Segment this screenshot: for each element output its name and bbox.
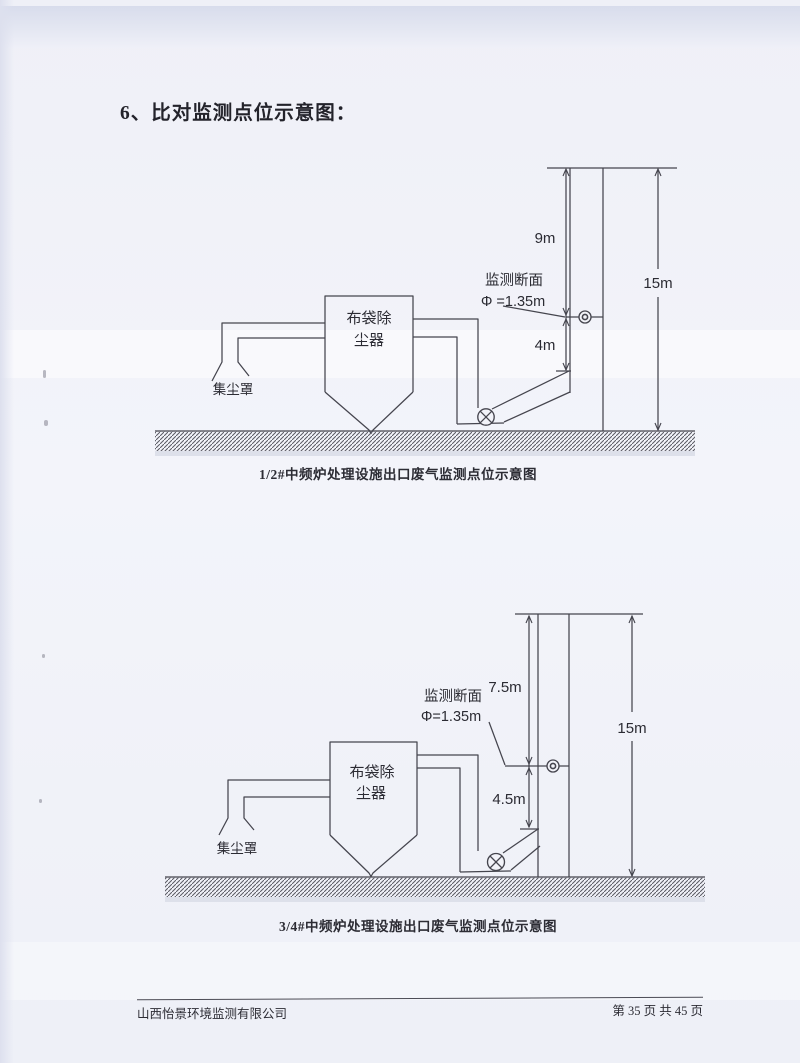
page-heading: 6、比对监测点位示意图： [120, 96, 356, 125]
dim-label-upper: 9m [535, 230, 556, 247]
bag-filter-label-line2: 尘器 [356, 785, 386, 802]
diameter-label: Φ=1.35m [421, 709, 481, 725]
sampling-port-icon [579, 311, 591, 323]
duct-system [417, 755, 540, 872]
collection-hood-outline [212, 323, 325, 381]
diagram-2-caption: 3/4#中频炉处理设施出口废气监测点位示意图 [160, 915, 676, 935]
footer-page-number: 第 35 页 共 45 页 [500, 1000, 703, 1019]
dimension-lines [489, 616, 635, 876]
bag-filter-label-line2: 尘器 [354, 332, 384, 349]
scan-speck [43, 370, 46, 378]
sampling-port-icon [547, 760, 559, 772]
hood-label: 集尘罩 [213, 382, 254, 397]
dim-label-upper: 7.5m [488, 679, 521, 696]
dimension-arrowheads [526, 616, 635, 876]
duct-system [413, 319, 570, 424]
collection-hood-outline [219, 780, 330, 835]
fan-icon [478, 409, 494, 425]
diagram-1: 9m 4m 15m 监测断面 Φ =1.35m 布袋除 尘器 集尘罩 [140, 150, 710, 462]
bag-filter-label-line1: 布袋除 [346, 310, 391, 327]
dimension-arrowheads [563, 169, 661, 430]
hood-label: 集尘罩 [217, 841, 258, 856]
bag-filter-label-line1: 布袋除 [349, 764, 394, 781]
fan-icon [488, 854, 505, 871]
diagram-2: 7.5m 4.5m 15m 监测断面 Φ=1.35m 布袋除 尘器 集尘罩 [140, 598, 720, 910]
bag-filter-outline [330, 742, 417, 877]
scanned-page: 6、比对监测点位示意图： [0, 0, 800, 1063]
footer-company: 山西怡景环境监测有限公司 [137, 1003, 287, 1022]
scan-speck [39, 799, 42, 803]
dim-label-total: 15m [617, 720, 646, 737]
scan-edge-shadow [0, 0, 14, 1063]
dim-label-lower: 4m [535, 337, 556, 354]
scan-speck [44, 420, 48, 426]
diameter-label: Φ =1.35m [481, 294, 545, 310]
ground-hatching [155, 431, 695, 456]
monitoring-section-label: 监测断面 [424, 688, 482, 705]
diagram-1-caption: 1/2#中频炉处理设施出口废气监测点位示意图 [140, 463, 656, 483]
scan-artifact-low-band [0, 942, 800, 1000]
scan-speck [42, 654, 45, 658]
scan-artifact-top-band [0, 6, 800, 48]
monitoring-section-label: 监测断面 [485, 272, 543, 289]
dim-label-total: 15m [643, 275, 672, 292]
ground-hatching [165, 877, 705, 902]
dim-label-lower: 4.5m [492, 791, 525, 808]
